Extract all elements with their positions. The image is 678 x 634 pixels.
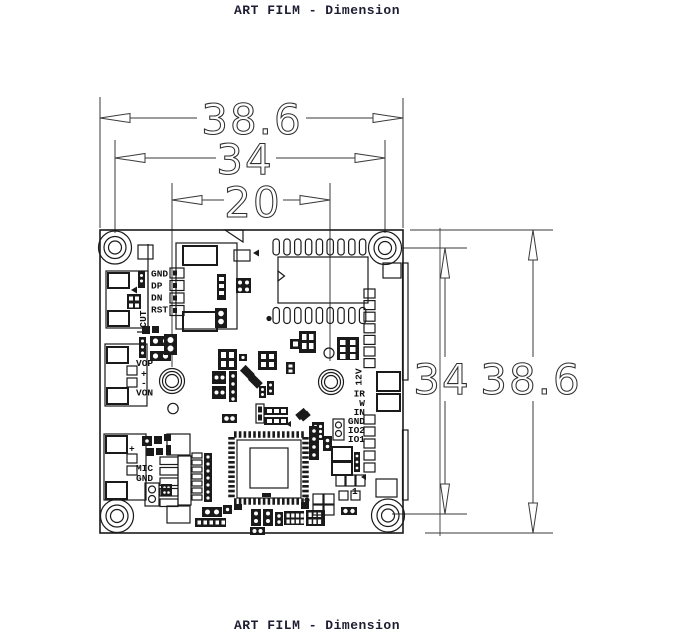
arrow-marker-icon <box>253 250 259 257</box>
label-dp: DP <box>151 281 163 292</box>
label-vop: VOP <box>136 358 153 369</box>
label-dn: DN <box>151 293 163 304</box>
label-von: VON <box>136 388 153 399</box>
mounting-hole-top-left <box>99 231 132 264</box>
dimension-drawing-page: ART FILM - Dimension ART FILM - Dimensio… <box>0 0 678 634</box>
soic-pads-top <box>273 239 366 255</box>
dimension-height-34: 34 <box>392 228 471 536</box>
label-mic-gnd: GND <box>136 473 153 484</box>
pcb-dimension-drawing: ART FILM - Dimension ART FILM - Dimensio… <box>0 0 678 634</box>
lens-hole-right <box>319 370 344 395</box>
label-io1: IO1 <box>348 434 365 445</box>
mounting-hole-bottom-right <box>372 499 405 532</box>
label-cut: CUT <box>138 310 149 327</box>
small-hole-right <box>324 348 334 358</box>
dim-value-lens-spacing: 20 <box>224 178 281 227</box>
label-pin-one: 1 <box>352 486 358 497</box>
small-hole-left <box>168 403 178 413</box>
dim-value-hole-spacing-h: 34 <box>216 135 273 184</box>
pin1-dot <box>304 497 309 502</box>
pin1-dot <box>266 316 271 321</box>
label-12v: 12V <box>354 368 365 385</box>
soic-pads-bottom <box>273 308 366 324</box>
page-title-bottom: ART FILM - Dimension <box>234 618 400 633</box>
right-edge-connector <box>364 263 401 472</box>
label-gnd: GND <box>151 269 168 280</box>
lens-hole-left <box>160 369 185 394</box>
components-center <box>212 339 324 440</box>
label-rst: RST <box>151 305 168 316</box>
qfp-ic <box>232 435 310 503</box>
dim-value-height-outer: 38.6 <box>480 355 582 404</box>
mounting-hole-top-right <box>369 232 402 265</box>
usb-connector <box>170 243 259 331</box>
page-title-top: ART FILM - Dimension <box>234 3 400 18</box>
soic-ic <box>266 239 368 324</box>
corner-chamfer-mark <box>225 230 243 242</box>
label-mic-plus: + <box>129 444 135 455</box>
dim-value-hole-spacing-v: 34 <box>413 355 470 404</box>
mounting-hole-bottom-left <box>101 500 134 533</box>
arrow-marker-icon <box>131 287 137 294</box>
